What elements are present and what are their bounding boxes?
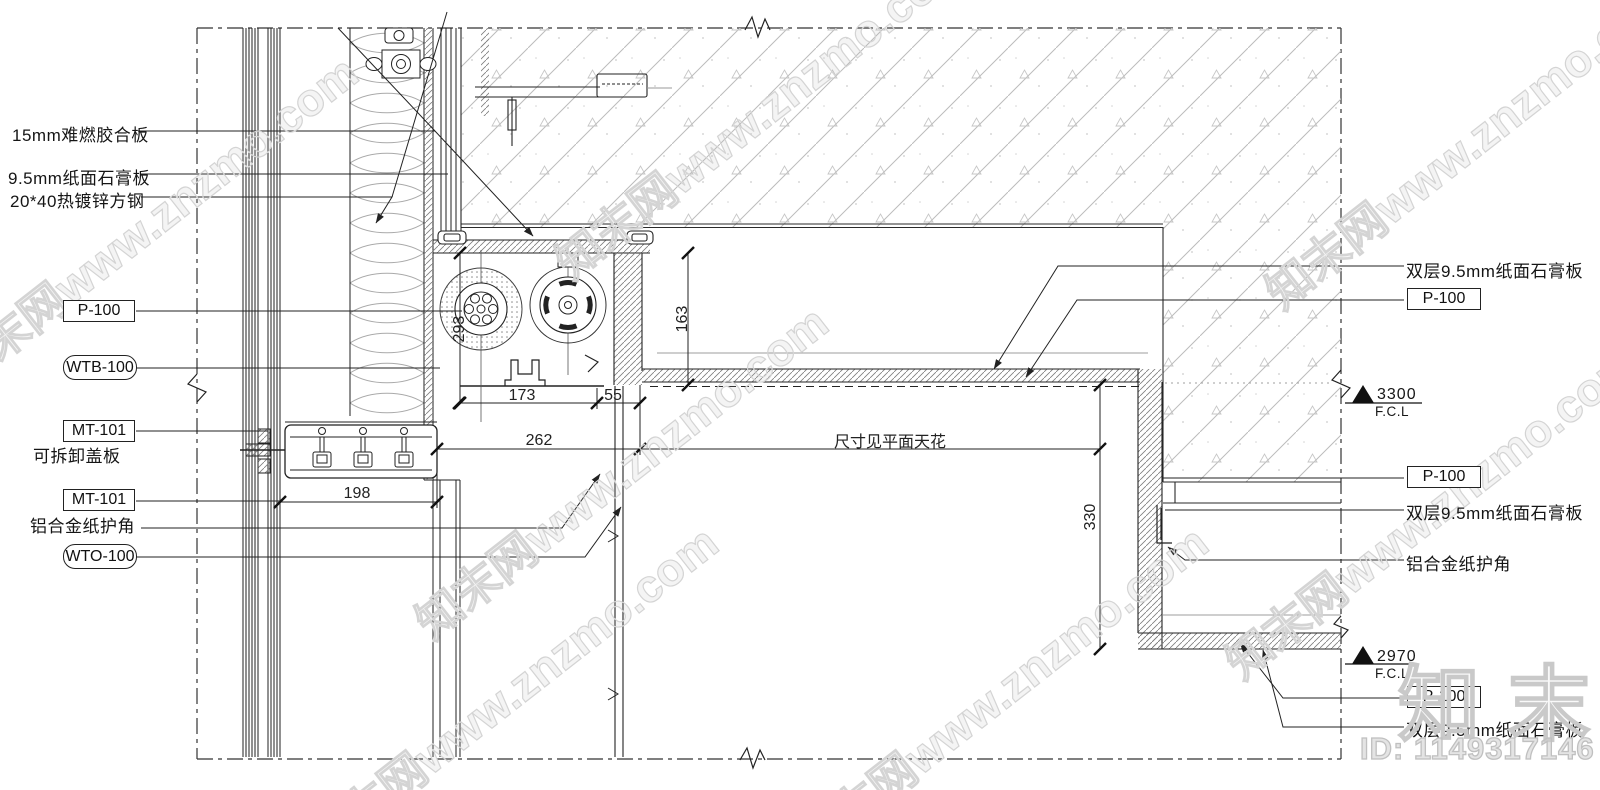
removable-cover-plate — [240, 422, 437, 478]
bulkhead-hatch — [1138, 369, 1162, 649]
callout-double-gypsum-mid: 双层9.5mm纸面石膏板 — [1406, 499, 1583, 524]
dim-173: 173 — [500, 387, 544, 405]
dim-330: 330 — [1082, 495, 1100, 539]
level-datum-3300: F.C.L — [1375, 404, 1435, 419]
track-clips — [608, 530, 618, 700]
level-value-2970: 2970 — [1377, 648, 1437, 666]
dim-163: 163 — [674, 297, 692, 341]
dim-198: 198 — [335, 485, 379, 503]
furring-channel — [505, 360, 545, 386]
callout-box-p100-r1: P-100 — [1407, 288, 1481, 310]
curtain-wall-mullion — [243, 28, 280, 757]
insulation-batt — [350, 28, 424, 416]
dim-note-ceiling-plan: 尺寸见平面天花 — [824, 428, 956, 452]
dim-55: 55 — [598, 387, 628, 405]
callout-steel-tube: 20*40热镀锌方钢 — [10, 187, 144, 212]
callout-box-wto100: WTO-100 — [63, 544, 137, 569]
dim-293: 293 — [451, 307, 469, 351]
callout-double-gypsum-bottom: 双层9.5mm纸面石膏板 — [1406, 716, 1583, 741]
dim-262: 262 — [517, 432, 561, 450]
callout-box-mt101-b: MT-101 — [63, 489, 135, 511]
callout-box-p100-r2: P-100 — [1407, 466, 1481, 488]
upper-ceiling-hatch — [642, 369, 1140, 382]
pocket-cheek-hatch — [614, 253, 642, 385]
callout-box-wtb100: WTB-100 — [63, 355, 137, 380]
cad-linework — [0, 0, 1600, 790]
callout-corner-guard: 铝合金纸护角 — [1406, 550, 1511, 575]
callout-mt101-b-sub: 铝合金纸护角 — [30, 512, 135, 537]
level-datum-2970: F.C.L — [1375, 666, 1435, 681]
callout-box-mt101-a: MT-101 — [63, 420, 135, 442]
cad-detail-drawing: 知末网www.znzmo.com 知末网www.znzmo.com 知末网www… — [0, 0, 1600, 790]
callout-box-p100-left: P-100 — [63, 300, 135, 322]
plywood-layer-hatch — [424, 28, 433, 480]
callout-mt101-a-sub: 可拆卸盖板 — [33, 442, 121, 467]
lower-ceiling-hatch — [1138, 633, 1341, 649]
callout-box-p100-r3: P-100 — [1407, 686, 1481, 708]
anchor-strip-hatch — [481, 28, 489, 116]
callout-gypsum: 9.5mm纸面石膏板 — [8, 164, 150, 189]
callout-double-gypsum-top: 双层9.5mm纸面石膏板 — [1406, 257, 1583, 282]
callout-plywood: 15mm难燃胶合板 — [12, 121, 149, 146]
hanger-right — [530, 248, 606, 375]
level-value-3300: 3300 — [1377, 386, 1437, 404]
concrete-structure-hatch — [461, 28, 1341, 482]
